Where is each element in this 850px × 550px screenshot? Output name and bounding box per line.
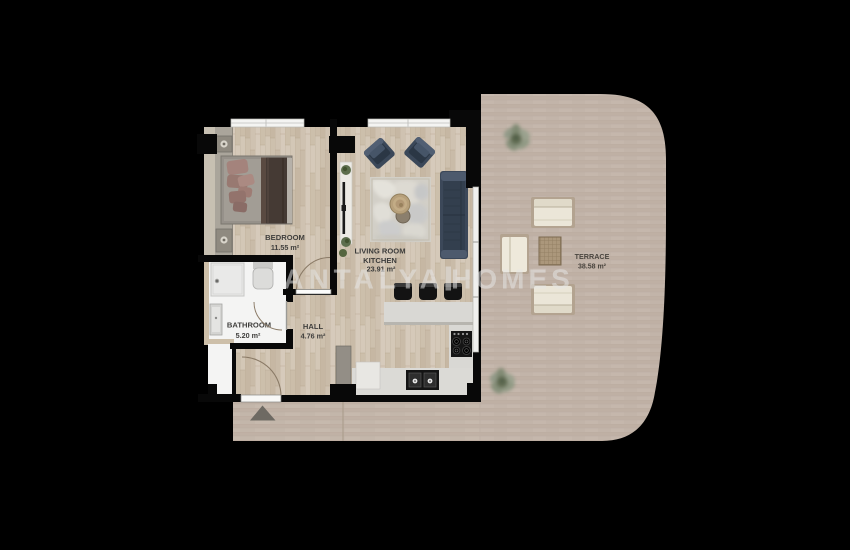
svg-text:BATHROOM: BATHROOM (227, 321, 271, 330)
svg-text:11.55 m²: 11.55 m² (271, 243, 300, 252)
svg-text:BEDROOM: BEDROOM (265, 233, 305, 242)
svg-text:HOMES: HOMES (451, 264, 574, 295)
svg-text:4.76 m²: 4.76 m² (301, 332, 326, 341)
svg-text:TERRACE: TERRACE (575, 252, 610, 261)
svg-text:HALL: HALL (303, 322, 324, 331)
svg-text:LIVING ROOM: LIVING ROOM (354, 247, 405, 256)
svg-text:ANTALYA: ANTALYA (283, 264, 445, 295)
svg-text:38.58 m²: 38.58 m² (578, 264, 607, 271)
svg-text:5.20 m²: 5.20 m² (236, 331, 261, 340)
